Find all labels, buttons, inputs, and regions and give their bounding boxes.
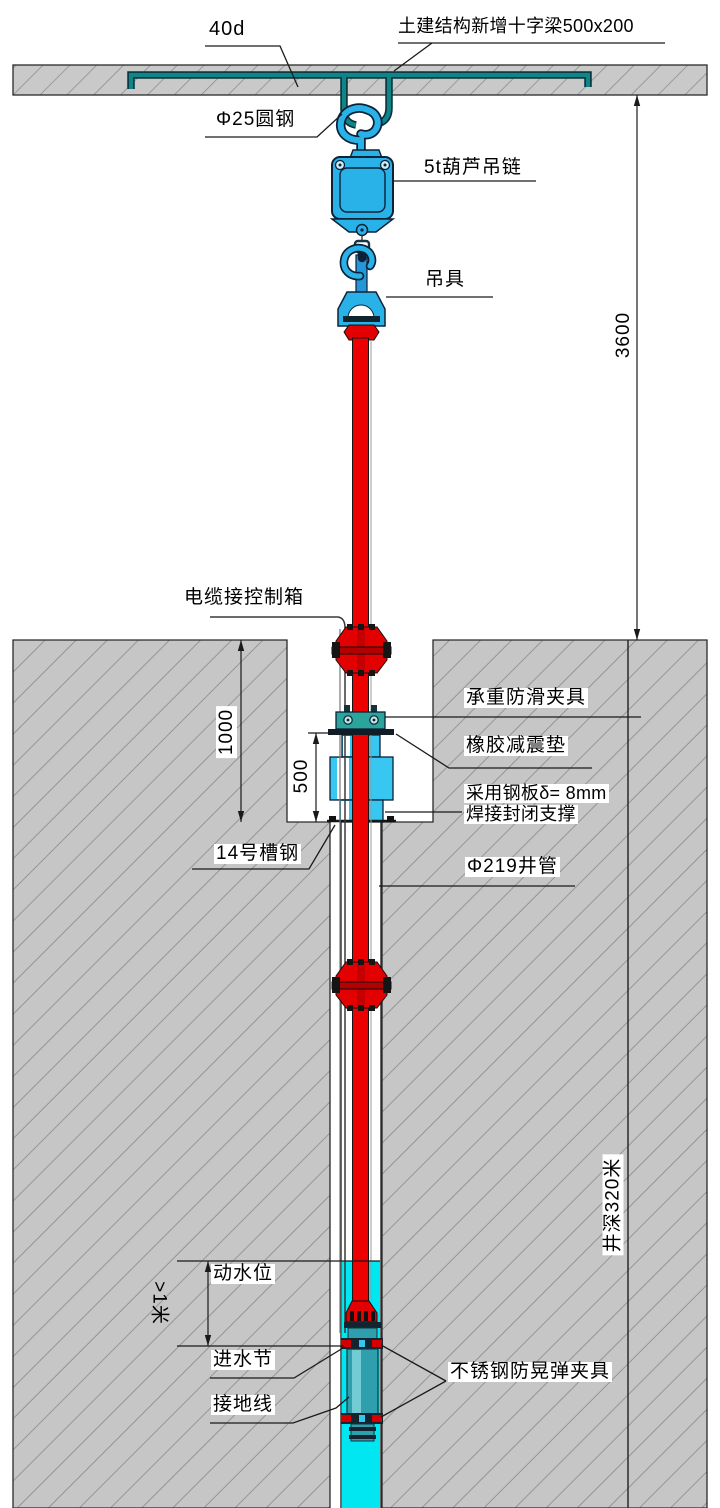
label-steel-plate-line2: 焊接封闭支撑: [464, 805, 578, 824]
dim-text-1000: 1000: [216, 706, 237, 758]
label-anchor-length: 40d: [209, 19, 245, 40]
ceiling-slab: [13, 65, 707, 95]
pipe-coupling-upper: [332, 624, 391, 676]
hoist-chain-and-lower-hook: [344, 236, 372, 293]
diagram-canvas: [0, 0, 720, 1508]
label-ground-wire: 接地线: [211, 1395, 275, 1415]
label-round-steel: Φ25圆钢: [216, 110, 295, 130]
dim-text-3600: 3600: [613, 312, 635, 358]
hoist-top-hook: [341, 108, 378, 152]
label-steel-plate-line1: 采用钢板δ= 8mm: [464, 784, 609, 803]
label-well-pipe: Φ219井管: [465, 857, 560, 877]
dim-text-500: 500: [291, 756, 312, 797]
chain-hoist: [332, 150, 393, 236]
label-load-clamp: 承重防滑夹具: [464, 688, 588, 708]
label-lifting-device: 吊具: [425, 270, 465, 290]
label-dynamic-water-level: 动水位: [211, 1264, 275, 1284]
label-cable-to-control-box: 电缆接控制箱: [184, 588, 304, 608]
dim-text-min-submergence: >1米: [148, 1281, 175, 1325]
label-anti-sway-clamp: 不锈钢防晃弹夹具: [448, 1362, 612, 1382]
label-channel-steel: 14号槽钢: [214, 844, 301, 864]
label-rubber-pad: 橡胶减震垫: [464, 736, 568, 756]
dim-text-well-depth: 井深320米: [603, 1155, 624, 1256]
label-beam: 土建结构新增十字梁500x200: [398, 17, 634, 36]
lifting-device: [338, 292, 385, 340]
anti-sway-clamp-upper: [341, 1338, 383, 1349]
well-pump-installation-diagram: 40d 土建结构新增十字梁500x200 Φ25圆钢 5t葫芦吊链 吊具 电缆接…: [0, 0, 720, 1508]
rubber-shock-pad: [328, 729, 394, 735]
label-water-inlet: 进水节: [211, 1350, 275, 1370]
riser-pipe: [353, 338, 372, 1304]
submersible-pump: [341, 1301, 383, 1441]
anti-sway-clamp-lower: [341, 1413, 383, 1424]
label-hoist: 5t葫芦吊链: [424, 158, 522, 178]
